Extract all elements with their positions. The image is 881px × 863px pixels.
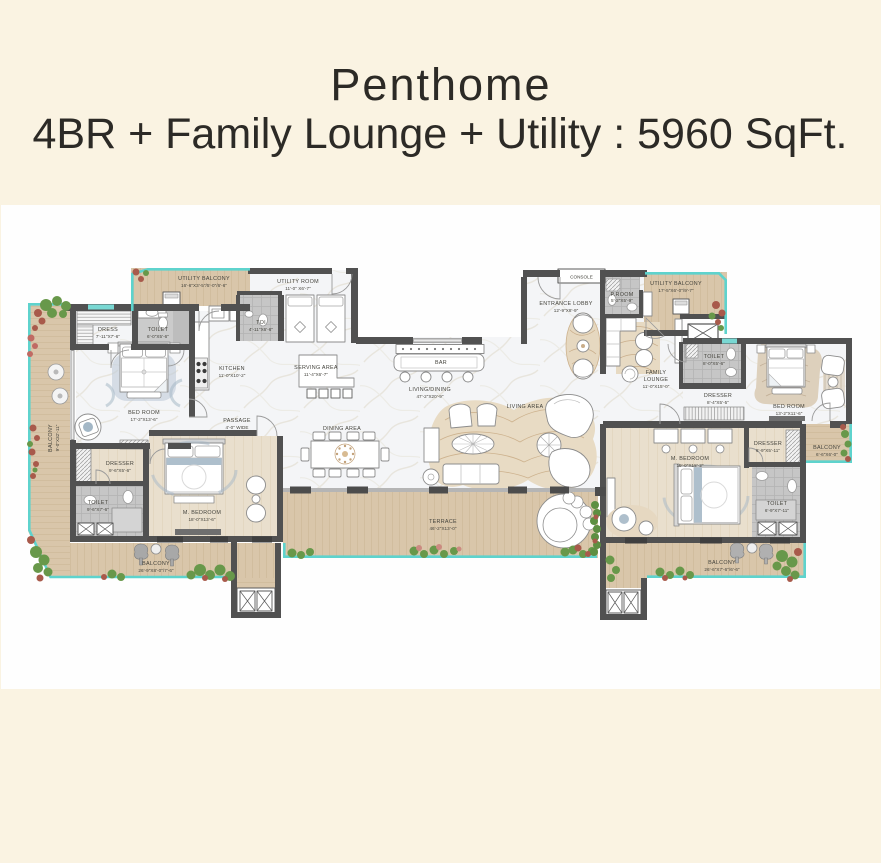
svg-text:KITCHEN: KITCHEN (219, 366, 245, 372)
svg-text:5'-2"X5'-9": 5'-2"X5'-9" (611, 298, 633, 303)
svg-text:9'-0"X32'-11": 9'-0"X32'-11" (55, 424, 60, 451)
svg-text:CONSOLE: CONSOLE (570, 275, 593, 280)
svg-text:11'-0" X6'-7": 11'-0" X6'-7" (285, 286, 311, 291)
svg-text:DRESS: DRESS (98, 327, 118, 333)
svg-text:46'-2"X13'-0": 46'-2"X13'-0" (429, 526, 456, 531)
svg-text:8'-4"X5'-5": 8'-4"X5'-5" (707, 400, 729, 405)
svg-text:9'-6"X5'-6": 9'-6"X5'-6" (109, 468, 131, 473)
svg-text:13'-2"X11'-6": 13'-2"X11'-6" (776, 411, 803, 416)
svg-text:M. BEDROOM: M. BEDROOM (183, 510, 222, 516)
svg-text:TOILET: TOILET (767, 501, 788, 507)
svg-text:4'-11"X6'-6": 4'-11"X6'-6" (249, 327, 273, 332)
svg-text:4'-0" WIDE: 4'-0" WIDE (226, 425, 249, 430)
svg-text:6'-9"X7'-11": 6'-9"X7'-11" (765, 508, 789, 513)
svg-text:UTILITY BALCONY: UTILITY BALCONY (650, 281, 702, 287)
svg-text:Penthome: Penthome (330, 59, 551, 110)
svg-text:BALCONY: BALCONY (142, 561, 170, 567)
svg-text:TOILET: TOILET (88, 500, 109, 506)
svg-text:LOUNGE: LOUNGE (644, 377, 669, 383)
svg-text:9'-6"X7'-6": 9'-6"X7'-6" (87, 507, 109, 512)
svg-text:UTILITY BALCONY: UTILITY BALCONY (178, 276, 230, 282)
svg-text:47'-2"X20'-9": 47'-2"X20'-9" (416, 394, 443, 399)
svg-text:11'-0"X10'-2": 11'-0"X10'-2" (219, 373, 246, 378)
svg-text:12'-9"X8'-9": 12'-9"X8'-9" (554, 308, 579, 313)
svg-text:7'-11"X7'-6": 7'-11"X7'-6" (96, 334, 120, 339)
svg-text:BED ROOM: BED ROOM (128, 410, 160, 416)
svg-text:LIVING/DINING: LIVING/DINING (409, 387, 451, 393)
svg-text:26'-6"X7'-6"/6'-6": 26'-6"X7'-6"/6'-6" (704, 567, 740, 572)
svg-text:FAMILY: FAMILY (646, 370, 667, 376)
svg-text:6'-9"X5'-11": 6'-9"X5'-11" (756, 448, 780, 453)
svg-text:17'-5"X6'-0"/9'-7": 17'-5"X6'-0"/9'-7" (658, 288, 694, 293)
svg-text:BALCONY: BALCONY (708, 560, 736, 566)
svg-text:6'-6"X6'-0": 6'-6"X6'-0" (816, 452, 838, 457)
svg-text:BALCONY: BALCONY (48, 424, 54, 452)
svg-text:DRESSER: DRESSER (106, 461, 134, 467)
svg-text:TERRACE: TERRACE (429, 519, 457, 525)
svg-text:BALCONY: BALCONY (813, 445, 841, 451)
svg-text:TOILET: TOILET (704, 354, 725, 360)
svg-text:11'-0"X15'-0": 11'-0"X15'-0" (643, 384, 670, 389)
svg-text:BAR: BAR (435, 360, 447, 366)
svg-text:ENTRANCE LOBBY: ENTRANCE LOBBY (539, 301, 592, 307)
svg-text:26'-9"X8'-0"/7'-6": 26'-9"X8'-0"/7'-6" (138, 568, 174, 573)
svg-text:LIVING AREA: LIVING AREA (507, 404, 544, 410)
svg-text:6'-0"X5'-6": 6'-0"X5'-6" (147, 334, 169, 339)
svg-text:TOI: TOI (256, 320, 266, 326)
svg-text:PASSAGE: PASSAGE (223, 418, 251, 424)
svg-text:19'-0"X18'-3": 19'-0"X18'-3" (676, 463, 703, 468)
svg-text:DRESSER: DRESSER (754, 441, 782, 447)
svg-text:17'-2"X13'-6": 17'-2"X13'-6" (130, 417, 157, 422)
svg-text:11'-4"X6'-7": 11'-4"X6'-7" (304, 372, 328, 377)
svg-text:DRESSER: DRESSER (704, 393, 732, 399)
svg-text:TOILET: TOILET (148, 327, 169, 333)
svg-text:SERVING AREA: SERVING AREA (294, 365, 338, 371)
svg-text:M. BEDROOM: M. BEDROOM (671, 456, 710, 462)
svg-text:18'-0"X13'-6": 18'-0"X13'-6" (188, 517, 215, 522)
svg-text:UTILITY ROOM: UTILITY ROOM (277, 279, 319, 285)
svg-text:8'-0"X5'-6": 8'-0"X5'-6" (703, 361, 725, 366)
svg-text:BED ROOM: BED ROOM (773, 404, 805, 410)
svg-text:16'-6"X3'-5"/5'-0"/6'-6": 16'-6"X3'-5"/5'-0"/6'-6" (181, 283, 227, 288)
svg-text:4BR + Family Lounge + Utility: 4BR + Family Lounge + Utility : 5960 SqF… (32, 110, 847, 158)
svg-text:DINING AREA: DINING AREA (323, 426, 361, 432)
